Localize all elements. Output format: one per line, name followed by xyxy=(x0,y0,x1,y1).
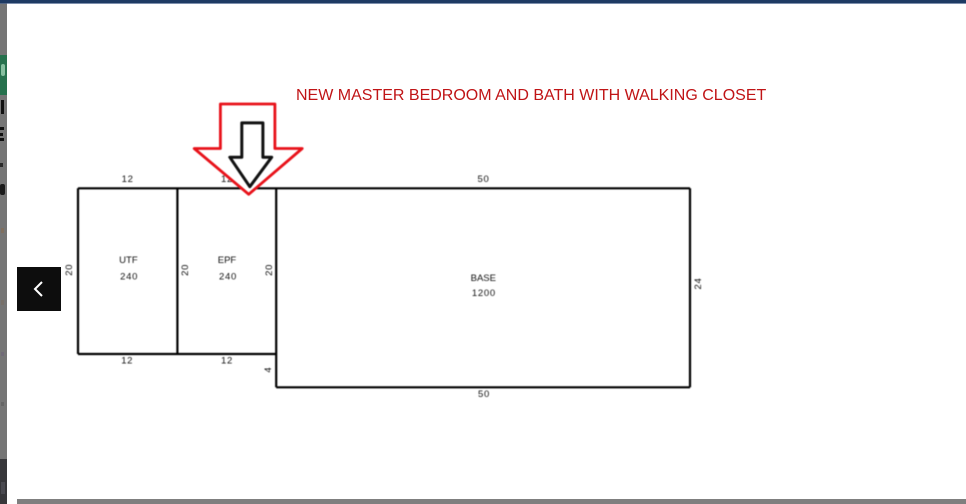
svg-text:240: 240 xyxy=(120,272,138,283)
svg-text:20: 20 xyxy=(264,264,275,276)
svg-text:50: 50 xyxy=(478,389,490,400)
svg-text:BASE: BASE xyxy=(471,273,496,284)
svg-text:12: 12 xyxy=(121,356,133,367)
svg-text:4: 4 xyxy=(263,367,274,373)
svg-text:50: 50 xyxy=(478,174,490,185)
svg-text:UTF: UTF xyxy=(119,255,138,266)
svg-text:24: 24 xyxy=(693,278,704,290)
svg-text:240: 240 xyxy=(219,272,237,283)
svg-text:1200: 1200 xyxy=(472,288,496,299)
svg-text:EPF: EPF xyxy=(218,255,237,266)
svg-text:20: 20 xyxy=(64,264,75,276)
svg-text:20: 20 xyxy=(180,264,191,276)
svg-text:12: 12 xyxy=(221,356,233,367)
svg-text:12: 12 xyxy=(122,174,134,185)
